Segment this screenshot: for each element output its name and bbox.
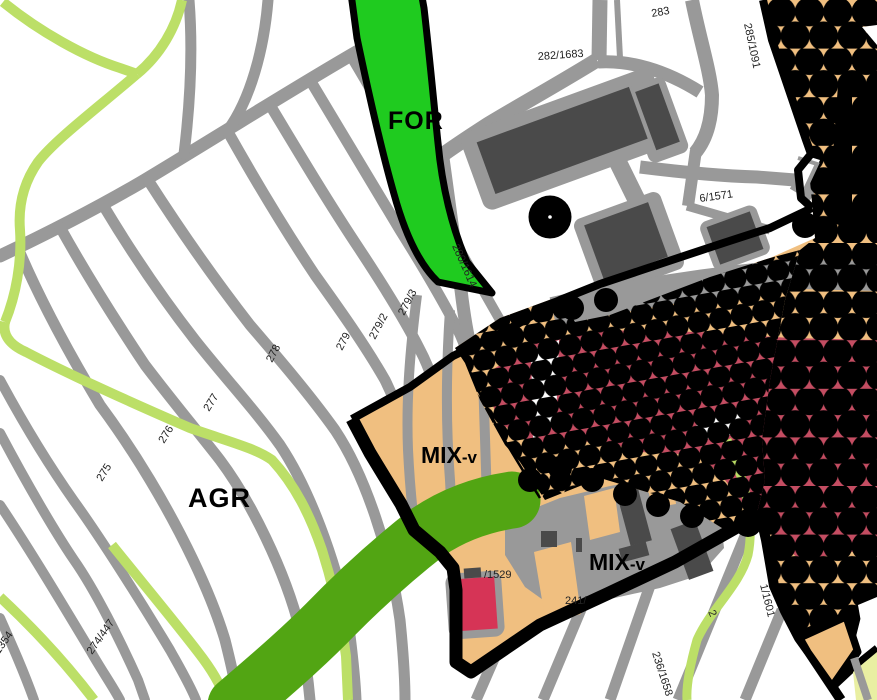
svg-text:AGR: AGR bbox=[188, 483, 251, 513]
svg-text:241/: 241/ bbox=[565, 595, 587, 607]
svg-text:/1529: /1529 bbox=[484, 569, 512, 581]
svg-text:FOR: FOR bbox=[388, 107, 444, 135]
